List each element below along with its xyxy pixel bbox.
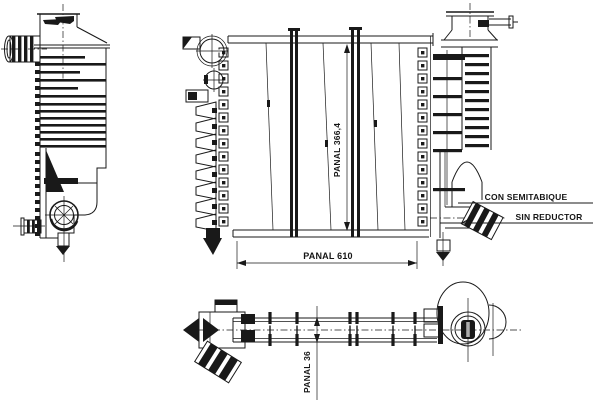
right-tank-rib-ends bbox=[433, 50, 465, 205]
panel-height-label: PANAL 366,4 bbox=[332, 123, 342, 177]
radiator-front-view bbox=[183, 27, 465, 255]
top-view-filler-cap bbox=[424, 282, 506, 362]
inlet-bracket bbox=[183, 34, 228, 102]
left-core-edge-strip bbox=[219, 48, 228, 226]
dimension-panel-depth: PANAL 36 bbox=[302, 306, 320, 400]
right-core-edge-strip bbox=[418, 48, 427, 226]
left-tank-fins bbox=[196, 102, 216, 231]
right-tank-side-view bbox=[430, 3, 518, 266]
note-con-semitabique: CON SEMITABIQUE bbox=[485, 192, 568, 202]
drawing-svg: CON SEMITABIQUE SIN REDUCTOR PANAL 366,4… bbox=[0, 0, 600, 400]
dimension-panel-height: PANAL 366,4 bbox=[332, 44, 350, 231]
note-sin-reductor: SIN REDUCTOR bbox=[516, 212, 583, 222]
left-tank-side-view bbox=[1, 4, 110, 262]
radiator-top-view bbox=[183, 282, 523, 383]
panel-depth-label: PANAL 36 bbox=[302, 351, 312, 393]
radiator-technical-drawing: CON SEMITABIQUE SIN REDUCTOR PANAL 366,4… bbox=[0, 0, 600, 400]
top-view-inlet-assembly bbox=[183, 300, 255, 383]
dimension-panel-width: PANAL 610 bbox=[237, 241, 417, 269]
panel-width-label: PANAL 610 bbox=[303, 251, 353, 261]
